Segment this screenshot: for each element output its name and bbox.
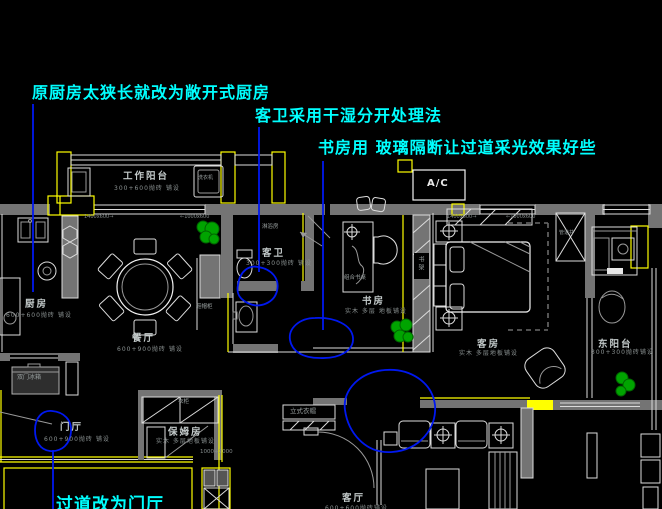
room-label-guest-bath: 客卫 — [262, 249, 285, 259]
annotation-foyer: 过道改为门厅 — [56, 497, 164, 509]
room-spec-dining: 600+900抛砖 铺设 — [117, 347, 183, 353]
shoe-cabinet-label: 鞋帽柜 — [196, 305, 213, 311]
sofa-icon — [456, 421, 487, 448]
dim-maid-door: 1000+2000 — [200, 450, 233, 456]
counter-icon — [592, 227, 637, 275]
plant-icon — [391, 319, 413, 342]
room-spec-foyer: 600+900抛砖 铺设 — [44, 437, 110, 443]
floor-plan-drawing — [0, 0, 662, 509]
shelf-icon — [489, 452, 517, 509]
shoe-cabinet — [197, 255, 220, 330]
dim-window-3: 1400x600→ — [447, 215, 476, 220]
armchair-icon — [521, 344, 568, 391]
room-spec-study: 实木 多层 地板铺设 — [345, 309, 407, 315]
foyer-fixtures — [0, 364, 59, 424]
exterior-walls — [0, 160, 662, 509]
chair-icon — [374, 236, 397, 264]
fridge-label: 双门冰箱 — [17, 375, 41, 381]
pillow-icon — [450, 284, 464, 309]
plant-icon — [197, 221, 219, 244]
room-label-guest-room: 客房 — [477, 340, 500, 350]
room-spec-guest-bath: 300+300抛砖 铺设 — [246, 261, 312, 267]
door-swing-icon — [0, 412, 52, 424]
room-spec-east-balcony: 300+300抛砖铺设 — [591, 350, 654, 356]
desk-label: 组合书桌 — [344, 276, 366, 282]
room-label-work-balcony: 工作阳台 — [123, 172, 169, 182]
washer-icon — [594, 238, 609, 270]
toilet-icon — [237, 250, 252, 258]
work-balcony-structure — [57, 152, 285, 203]
annotation-bath: 客卫采用干湿分开处理法 — [255, 108, 442, 124]
dim-window-1: 1400x600→ — [84, 215, 113, 220]
wardrobe-label: 衣柜 — [178, 400, 189, 406]
room-spec-kitchen: 600+600抛砖 铺设 — [6, 313, 72, 319]
plant-icon — [616, 372, 635, 396]
cad-canvas[interactable]: 原厨房太狭长就改为敞开式厨房 客卫采用干湿分开处理法 书房用 玻璃隔断让过道采光… — [0, 0, 662, 509]
shower-label: 淋浴房 — [262, 225, 279, 231]
room-label-living: 客厅 — [342, 494, 365, 504]
room-label-foyer: 门厅 — [60, 423, 83, 433]
room-spec-maid-room: 实木 多层地板铺设 — [156, 439, 215, 445]
east-balcony-fixtures — [592, 227, 637, 323]
room-label-dining: 餐厅 — [132, 334, 155, 344]
bed-icon — [446, 242, 530, 312]
pipe-shaft — [556, 213, 585, 261]
chair-icon — [599, 291, 625, 323]
guest-room-furniture — [434, 209, 569, 392]
ac-label: A/C — [427, 179, 449, 189]
washer-label: 洗衣机 — [198, 176, 213, 181]
room-spec-guest-room: 实木 多层地板铺设 — [459, 351, 518, 357]
door-swing-icon — [318, 432, 374, 488]
room-spec-work-balcony: 300+600抛砖 铺设 — [114, 186, 180, 192]
pillow-icon — [450, 247, 464, 272]
shaft-label: 管道井 — [559, 231, 574, 236]
annotation-study: 书房用 玻璃隔断让过道采光效果好些 — [318, 140, 597, 156]
dim-window-2: ←1000x600 — [180, 215, 209, 220]
living-room-furniture — [384, 408, 660, 509]
dim-window-4: ←1000x600 — [506, 215, 535, 220]
guest-bathroom-fixtures — [233, 216, 330, 332]
coat-rack-label: 立式衣帽 — [290, 408, 316, 415]
bookshelf-label: 书架 — [417, 256, 423, 272]
markup-circles — [35, 267, 435, 453]
room-label-study: 书房 — [362, 297, 385, 307]
dining-table-set — [97, 239, 192, 335]
annotation-kitchen: 原厨房太狭长就改为敞开式厨房 — [32, 85, 270, 101]
room-label-maid-room: 保姆房 — [168, 428, 203, 438]
room-label-kitchen: 厨房 — [25, 300, 48, 310]
coffee-table-icon — [426, 469, 459, 509]
